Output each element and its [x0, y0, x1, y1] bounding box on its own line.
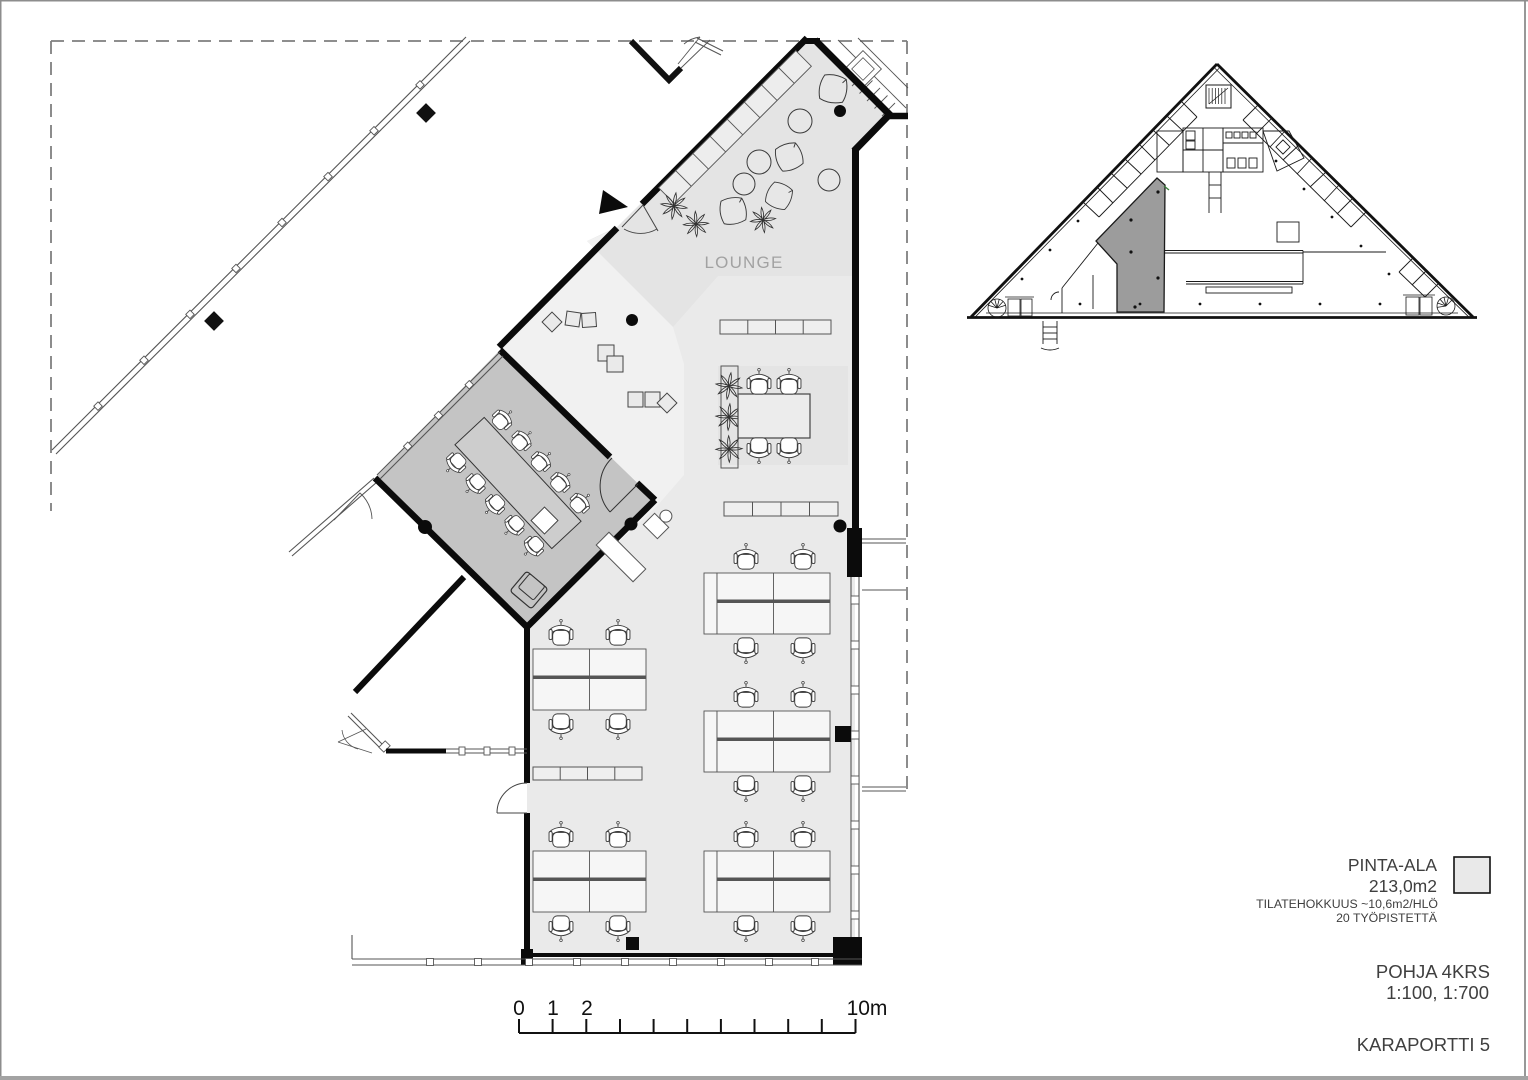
svg-text:TILATEHOKKUUS ~10,6m2/HLÖ: TILATEHOKKUUS ~10,6m2/HLÖ	[1256, 897, 1438, 911]
svg-text:20 TYÖPISTETTÄ: 20 TYÖPISTETTÄ	[1336, 911, 1438, 925]
svg-text:1:100, 1:700: 1:100, 1:700	[1386, 982, 1489, 1003]
svg-text:10m: 10m	[847, 997, 888, 1020]
svg-text:2: 2	[581, 997, 593, 1020]
svg-text:KARAPORTTI 5: KARAPORTTI 5	[1357, 1034, 1490, 1055]
svg-text:1: 1	[547, 997, 559, 1020]
svg-text:LOUNGE: LOUNGE	[705, 253, 784, 272]
svg-text:POHJA 4KRS: POHJA 4KRS	[1376, 961, 1490, 982]
svg-text:213,0m2: 213,0m2	[1369, 876, 1437, 896]
svg-text:PINTA-ALA: PINTA-ALA	[1348, 855, 1437, 875]
svg-text:0: 0	[513, 997, 525, 1020]
